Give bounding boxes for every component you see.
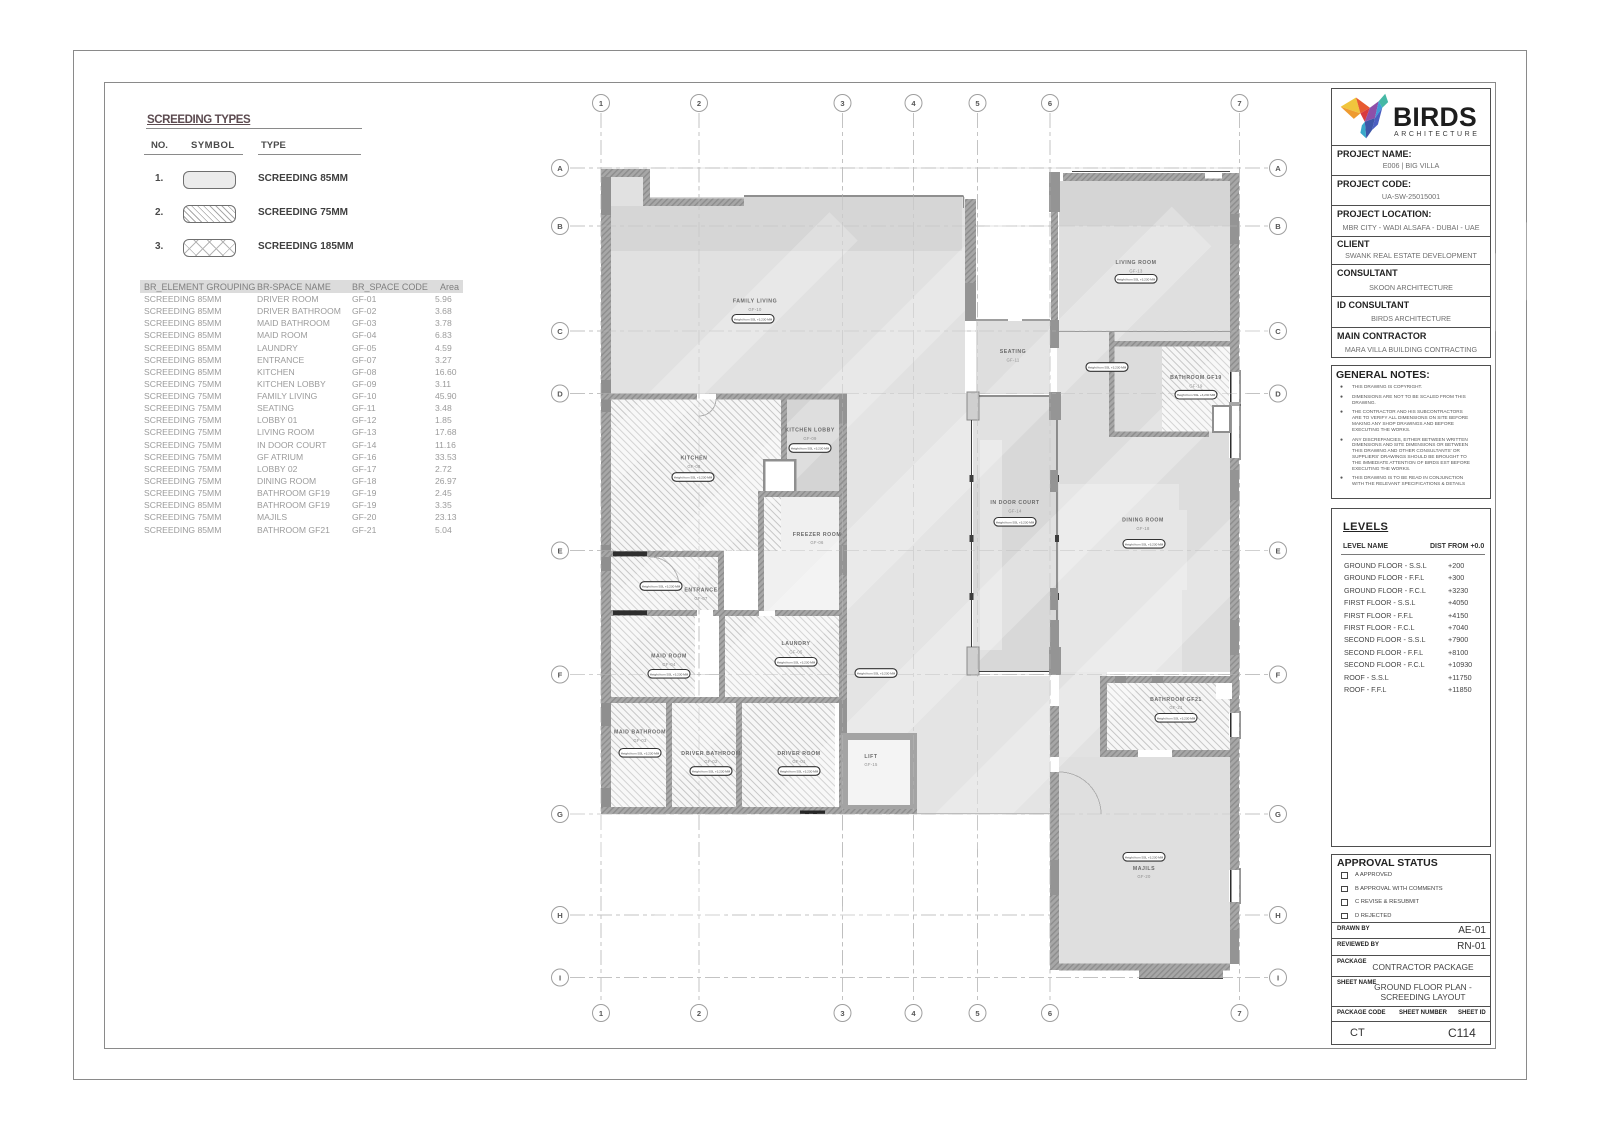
svg-text:Height from SSL +3,230 MM: Height from SSL +3,230 MM bbox=[780, 770, 819, 774]
svg-text:FAMILY LIVING: FAMILY LIVING bbox=[733, 299, 777, 305]
svg-text:KITCHEN: KITCHEN bbox=[681, 456, 708, 462]
svg-text:GF-10: GF-10 bbox=[748, 307, 762, 312]
svg-text:DRIVER BATHROOM: DRIVER BATHROOM bbox=[681, 751, 740, 757]
svg-text:GF-05: GF-05 bbox=[789, 649, 803, 654]
svg-text:GF-21: GF-21 bbox=[1169, 705, 1183, 710]
svg-text:Height from SSL +3,230 MM: Height from SSL +3,230 MM bbox=[1125, 855, 1164, 859]
svg-text:GF-19: GF-19 bbox=[1189, 383, 1203, 388]
svg-text:GF-03: GF-03 bbox=[633, 738, 647, 743]
svg-text:KITCHEN LOBBY: KITCHEN LOBBY bbox=[785, 428, 835, 434]
svg-text:BIRDS: BIRDS bbox=[1393, 102, 1477, 132]
svg-text:MAID BATHROOM: MAID BATHROOM bbox=[614, 730, 666, 736]
svg-text:DINING ROOM: DINING ROOM bbox=[1122, 518, 1164, 524]
svg-text:Height from SSL +3,230 MM: Height from SSL +3,230 MM bbox=[734, 317, 773, 321]
svg-text:DRIVER ROOM: DRIVER ROOM bbox=[777, 751, 820, 757]
svg-text:LIFT: LIFT bbox=[864, 754, 877, 760]
svg-text:MAID ROOM: MAID ROOM bbox=[651, 654, 687, 660]
svg-text:MAJILS: MAJILS bbox=[1133, 866, 1155, 872]
svg-text:Height from SSL +3,230 MM: Height from SSL +3,230 MM bbox=[692, 770, 731, 774]
svg-text:Height from SSL +3,230 MM: Height from SSL +3,230 MM bbox=[621, 751, 660, 755]
svg-text:Height from SSL +3,230 MM: Height from SSL +3,230 MM bbox=[1088, 366, 1127, 370]
svg-text:GF-02: GF-02 bbox=[704, 759, 718, 764]
svg-text:Height from SSL +3,230 MM: Height from SSL +3,230 MM bbox=[1117, 277, 1156, 281]
svg-text:GF-20: GF-20 bbox=[1137, 874, 1151, 879]
svg-text:GF-14: GF-14 bbox=[1008, 508, 1022, 513]
svg-text:Height from SSL +3,230 MM: Height from SSL +3,230 MM bbox=[791, 447, 830, 451]
svg-text:GF-09: GF-09 bbox=[803, 436, 817, 441]
svg-text:Height from SSL +3,230 MM: Height from SSL +3,230 MM bbox=[1157, 716, 1196, 720]
svg-text:FREEZER ROOM: FREEZER ROOM bbox=[793, 532, 841, 538]
svg-text:GF-15: GF-15 bbox=[864, 762, 878, 767]
svg-text:GF-06: GF-06 bbox=[810, 540, 824, 545]
svg-text:Height from SSL +3,230 MM: Height from SSL +3,230 MM bbox=[642, 585, 681, 589]
svg-text:BATHROOM GF19: BATHROOM GF19 bbox=[1170, 375, 1222, 381]
svg-text:Height from SSL +3,230 MM: Height from SSL +3,230 MM bbox=[996, 520, 1035, 524]
svg-text:Height from SSL +3,230 MM: Height from SSL +3,230 MM bbox=[674, 476, 713, 480]
svg-text:Height from SSL +3,230 MM: Height from SSL +3,230 MM bbox=[1125, 542, 1164, 546]
svg-text:GF-13: GF-13 bbox=[1129, 268, 1143, 273]
svg-text:Height from SSL +3,230 MM: Height from SSL +3,230 MM bbox=[650, 672, 689, 676]
svg-text:LAUNDRY: LAUNDRY bbox=[781, 641, 810, 647]
svg-text:Height from SSL +3,230 MM: Height from SSL +3,230 MM bbox=[1177, 393, 1216, 397]
svg-text:LIVING ROOM: LIVING ROOM bbox=[1116, 260, 1157, 266]
svg-text:BATHROOM GF21: BATHROOM GF21 bbox=[1150, 697, 1202, 703]
svg-text:GF-08: GF-08 bbox=[687, 464, 701, 469]
svg-text:GF-11: GF-11 bbox=[1006, 357, 1019, 362]
svg-text:IN DOOR COURT: IN DOOR COURT bbox=[990, 500, 1040, 506]
svg-text:SEATING: SEATING bbox=[1000, 349, 1027, 355]
svg-text:Height from SSL +3,230 MM: Height from SSL +3,230 MM bbox=[777, 660, 816, 664]
svg-text:Height from SSL +3,230 MM: Height from SSL +3,230 MM bbox=[857, 672, 896, 676]
svg-text:GF-04: GF-04 bbox=[662, 662, 676, 667]
svg-text:ENTRANCE: ENTRANCE bbox=[684, 588, 717, 594]
svg-text:GF-18: GF-18 bbox=[1136, 526, 1150, 531]
svg-text:GF-01: GF-01 bbox=[792, 759, 806, 764]
svg-text:GF-07: GF-07 bbox=[694, 596, 708, 601]
svg-text:ARCHITECTURE: ARCHITECTURE bbox=[1394, 131, 1479, 138]
